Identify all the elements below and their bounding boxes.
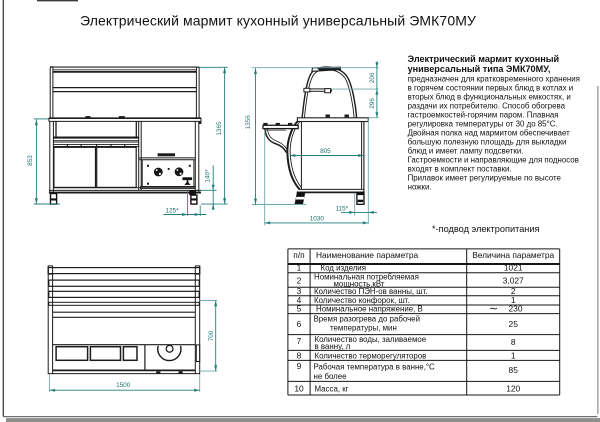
svg-text:*-подвод электропитания: *-подвод электропитания <box>432 224 540 234</box>
svg-text:Количество терморегуляторов: Количество терморегуляторов <box>315 351 427 360</box>
svg-text:Прилавок имеет регулируемые по: Прилавок имеет регулируемые по высоте <box>408 173 562 182</box>
svg-text:не более: не более <box>314 372 348 381</box>
svg-text:120: 120 <box>506 383 520 393</box>
svg-text:предназначен для кратковременн: предназначен для кратковременного хранен… <box>408 74 580 83</box>
svg-text:блюд и имеет лампу подсветки.: блюд и имеет лампу подсветки. <box>408 146 524 155</box>
svg-text:Рабочая температура в ванне,°С: Рабочая температура в ванне,°С <box>314 363 436 372</box>
svg-text:Количество ПЭН-ов ванны, шт.: Количество ПЭН-ов ванны, шт. <box>314 287 428 296</box>
svg-text:85: 85 <box>509 365 519 375</box>
svg-text:Электрический мармит кухонный: Электрический мармит кухонный <box>408 54 559 64</box>
svg-text:700: 700 <box>208 330 215 341</box>
svg-text:9: 9 <box>297 361 302 371</box>
svg-text:10: 10 <box>294 383 304 393</box>
svg-text:универсальный типа ЭМК70МУ,: универсальный типа ЭМК70МУ, <box>408 64 551 74</box>
svg-text:1: 1 <box>297 263 302 273</box>
svg-text:Время разогрева до рабочей: Время разогрева до рабочей <box>314 315 420 324</box>
svg-text:Двойная полка над мармитом обе: Двойная полка над мармитом обеспечивает <box>408 128 571 137</box>
svg-text:Электрический мармит кухонный: Электрический мармит кухонный универсаль… <box>80 13 476 29</box>
svg-text:в ванну, л: в ванну, л <box>315 342 351 351</box>
svg-text:6: 6 <box>297 319 302 329</box>
svg-text:Величина параметра: Величина параметра <box>472 250 554 260</box>
svg-text:ножки.: ножки. <box>408 182 432 191</box>
svg-text:805: 805 <box>320 148 331 155</box>
svg-text:1021: 1021 <box>504 263 523 273</box>
svg-text:Количество конфорок, шт.: Количество конфорок, шт. <box>314 296 410 305</box>
svg-text:206: 206 <box>369 72 376 83</box>
svg-text:7: 7 <box>297 336 302 346</box>
svg-text:8: 8 <box>511 337 516 347</box>
svg-text:входят в комплект поставки.: входят в комплект поставки. <box>408 164 512 173</box>
svg-text:температуры, мин: температуры, мин <box>330 324 397 333</box>
svg-text:8: 8 <box>297 350 302 360</box>
svg-text:п/п: п/п <box>293 250 304 260</box>
svg-text:5: 5 <box>297 304 302 314</box>
svg-text:1365: 1365 <box>216 121 223 136</box>
svg-text:853: 853 <box>27 155 34 166</box>
svg-text:140*: 140* <box>205 169 212 183</box>
svg-text:Масса, кг: Масса, кг <box>315 384 349 393</box>
svg-text:в горячем состоянии первых блю: в горячем состоянии первых блюд в котлах… <box>408 83 574 92</box>
svg-text:Гастроемкости и направляющие д: Гастроемкости и направляющие для подносо… <box>408 155 579 164</box>
svg-text:регулировка температуры от 30: регулировка температуры от 30 до 85°С. <box>408 119 558 128</box>
svg-text:Код изделия: Код изделия <box>321 264 366 273</box>
svg-text:Номинальное напряжение, В: Номинальное напряжение, В <box>316 305 423 314</box>
svg-text:25: 25 <box>509 319 519 329</box>
svg-text:230: 230 <box>509 304 523 314</box>
svg-text:1030: 1030 <box>310 216 325 223</box>
svg-text:1356: 1356 <box>245 115 252 130</box>
svg-text:гастроемкостей-горячим паром.: гастроемкостей-горячим паром. Плавная <box>408 110 559 119</box>
svg-text:большую полезную площадь для в: большую полезную площадь для выкладки <box>408 137 567 146</box>
svg-text:1500: 1500 <box>116 382 131 389</box>
svg-text:∼: ∼ <box>489 303 498 315</box>
svg-text:Наименование параметра: Наименование параметра <box>316 250 419 260</box>
svg-text:2: 2 <box>297 275 302 285</box>
svg-text:вторых блюд в функциональных е: вторых блюд в функциональных емкостях, и <box>408 92 571 101</box>
svg-text:1: 1 <box>511 350 516 360</box>
svg-text:раздачи их потребителю. Способ: раздачи их потребителю. Способ обогрева <box>408 101 566 110</box>
svg-text:3,027: 3,027 <box>503 275 524 285</box>
svg-text:296: 296 <box>369 98 376 109</box>
svg-text:125*: 125* <box>165 207 179 214</box>
svg-text:115*: 115* <box>335 206 348 213</box>
